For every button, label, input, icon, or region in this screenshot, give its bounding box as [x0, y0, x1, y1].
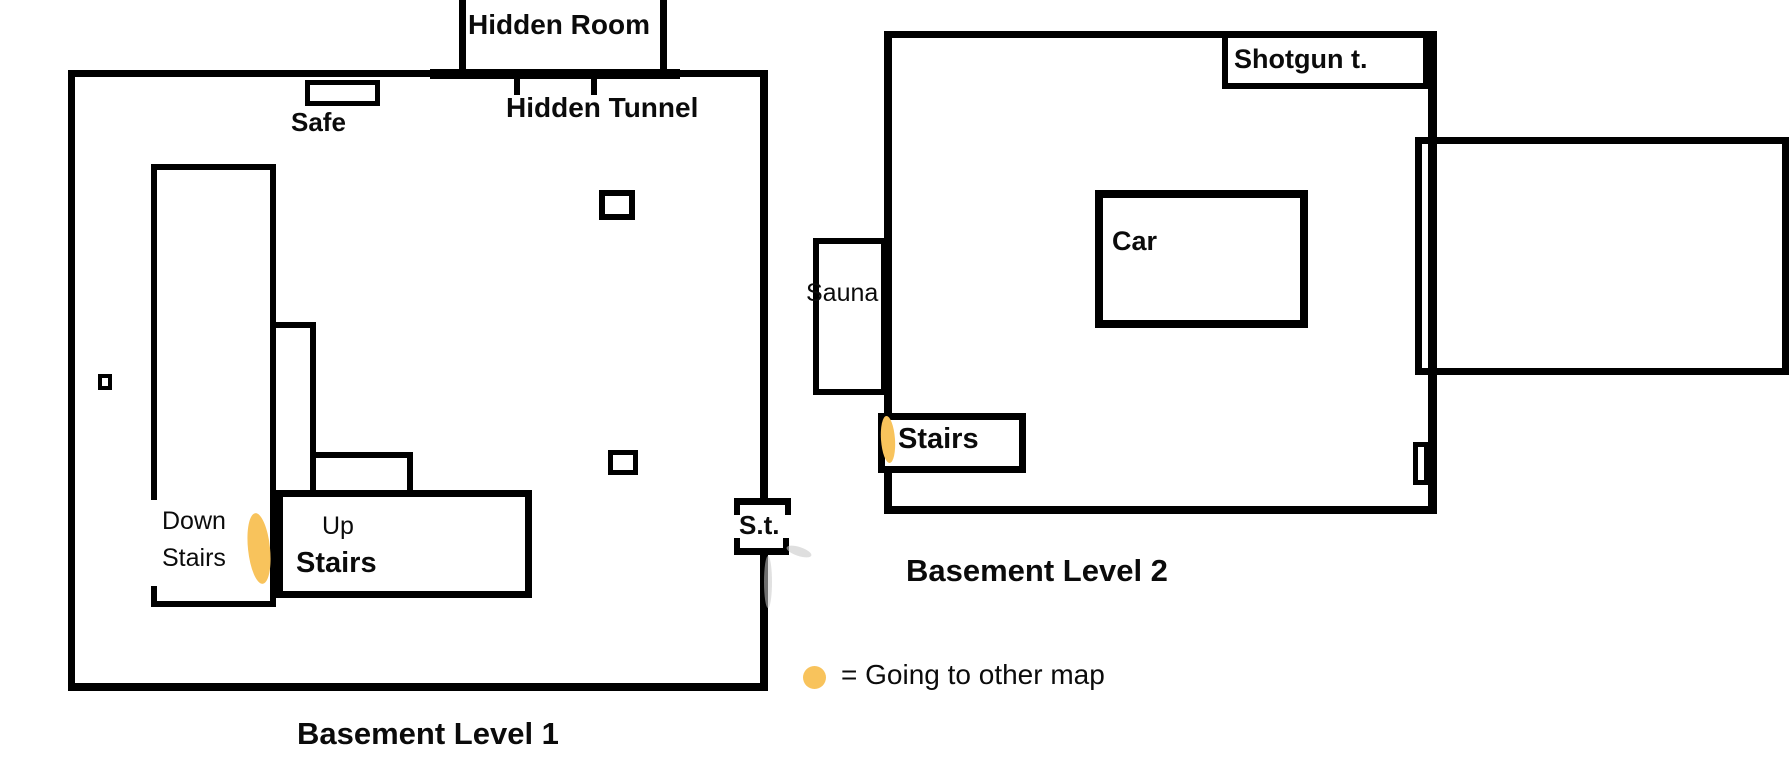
l2-wall-notch: [1413, 442, 1429, 485]
down-stairs-label-line1: Down: [162, 507, 226, 536]
safe-label: Safe: [291, 108, 346, 138]
safe-box: [305, 80, 380, 106]
shotgun-table-label: Shotgun t.: [1234, 44, 1367, 75]
l1-small-square-lower: [608, 450, 638, 475]
hidden-room-wall-right: [660, 0, 667, 77]
stairroom-wall-top: [151, 164, 276, 170]
car-box: [1095, 190, 1308, 328]
l1-wall-bottom: [68, 683, 768, 691]
sauna-label: Sauna: [806, 279, 878, 308]
stairroom-wall-bottom: [151, 601, 276, 607]
st-eraser-smudge-diagonal: [785, 543, 813, 560]
l1-title: Basement Level 1: [297, 716, 559, 752]
l1-wall-right-upper: [760, 70, 768, 500]
l2-wall-bottom: [884, 506, 1437, 514]
st-eraser-smudge-vertical: [764, 556, 772, 608]
hidden-tunnel-label: Hidden Tunnel: [506, 92, 698, 124]
up-stairs-label-line2: Stairs: [296, 547, 377, 580]
st-label: S.t.: [739, 511, 779, 541]
step-wall-right-upper: [310, 322, 316, 492]
st-box-stub-tr: [785, 498, 791, 515]
stairroom-wall-left-upper: [151, 164, 157, 500]
basement-maps-canvas: Hidden Room Hidden Tunnel Safe Up Stairs…: [0, 0, 1791, 780]
st-box-top-line: [734, 498, 791, 505]
l1-wall-left: [68, 70, 75, 690]
hidden-room-label: Hidden Room: [468, 9, 650, 41]
up-stairs-box: [276, 490, 532, 598]
down-stairs-label-line2: Stairs: [162, 544, 226, 573]
car-label: Car: [1112, 226, 1157, 257]
hidden-room-wall-left: [459, 0, 466, 77]
l2-title: Basement Level 2: [906, 553, 1168, 589]
st-box-bottom-line: [734, 548, 789, 555]
l1-small-square-upper: [599, 190, 635, 220]
hidden-room-floor-wall: [430, 69, 680, 79]
step-wall-top-lower: [310, 452, 413, 458]
l2-wall-right: [1428, 31, 1437, 513]
sauna-box: [813, 238, 887, 395]
legend-text: = Going to other map: [841, 659, 1105, 691]
up-stairs-label-line1: Up: [322, 512, 354, 541]
l2-attached-room: [1415, 137, 1789, 375]
legend-orange-dot-icon: [803, 666, 826, 689]
l1-tiny-square-leftwall: [98, 374, 112, 390]
l2-stairs-label: Stairs: [898, 423, 979, 456]
